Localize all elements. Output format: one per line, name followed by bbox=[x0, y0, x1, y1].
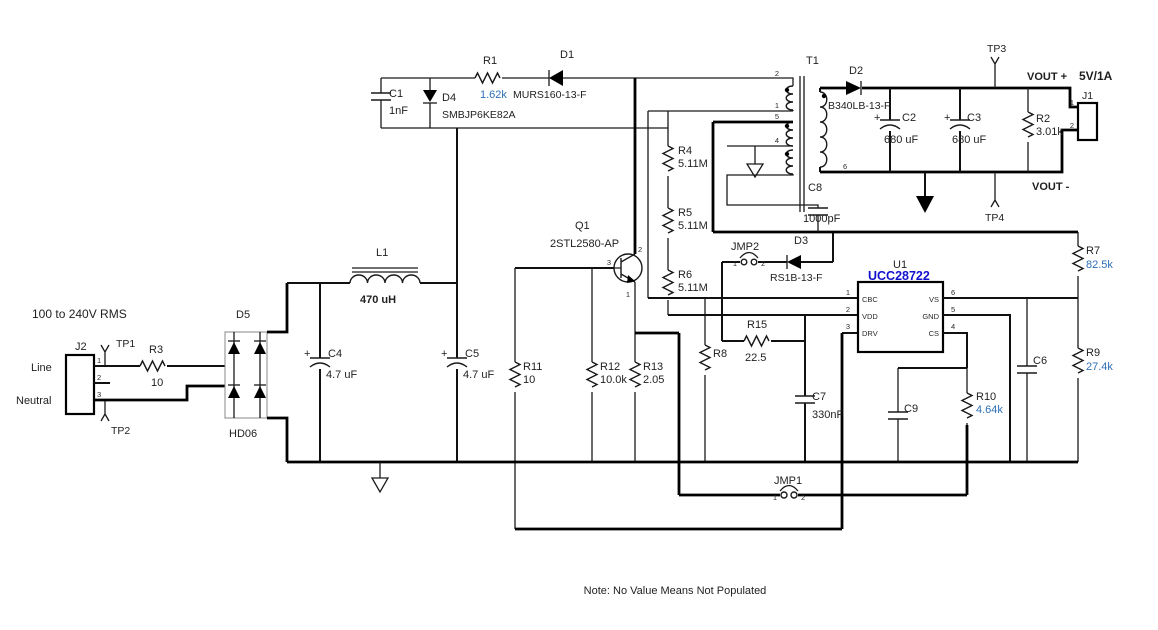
r12-ref: R12 bbox=[600, 361, 620, 373]
q1-pin-b: 3 bbox=[607, 258, 611, 267]
polarity-dot bbox=[785, 124, 789, 128]
r7-ref: R7 bbox=[1086, 245, 1100, 257]
jmp2-arc bbox=[740, 253, 758, 259]
tp2-ref: TP2 bbox=[111, 425, 130, 437]
r2-ref: R2 bbox=[1036, 113, 1050, 125]
c8-ref: C8 bbox=[808, 182, 822, 194]
l1-value: 470 uH bbox=[360, 294, 396, 306]
t1-pin2-number: 2 bbox=[775, 69, 779, 78]
j2-pin2-number: 2 bbox=[97, 373, 101, 382]
t1-core bbox=[800, 76, 804, 212]
resistor-r12: R12 10.0k bbox=[587, 268, 627, 462]
ac-input-section: 100 to 240V RMS J2 1 2 3 Line Neutral TP… bbox=[16, 283, 287, 462]
l1-core bbox=[352, 268, 418, 272]
u1-pin3-name: DRV bbox=[862, 329, 878, 338]
jmp2-pin1: 1 bbox=[733, 259, 737, 268]
schematic-canvas: 100 to 240V RMS J2 1 2 3 Line Neutral TP… bbox=[0, 0, 1158, 630]
j1-ref: J1 bbox=[1082, 90, 1093, 102]
c7-value: 330nF bbox=[812, 409, 843, 421]
d1-ref: D1 bbox=[560, 49, 574, 61]
c6-ref: C6 bbox=[1033, 355, 1047, 367]
q1-ref: Q1 bbox=[575, 220, 590, 232]
c4-ref: C4 bbox=[328, 348, 342, 360]
d5-part: HD06 bbox=[229, 428, 257, 440]
r3-value: 10 bbox=[151, 377, 163, 389]
wire bbox=[679, 425, 967, 495]
tp4-symbol bbox=[991, 172, 999, 207]
j1-body bbox=[1078, 103, 1097, 140]
vout-minus-label: VOUT - bbox=[1032, 181, 1070, 193]
r15-value: 22.5 bbox=[745, 352, 766, 364]
c5-ref: C5 bbox=[465, 348, 479, 360]
tp4-ref: TP4 bbox=[985, 212, 1004, 224]
diode-icon bbox=[254, 386, 266, 398]
r1-ref: R1 bbox=[483, 55, 497, 67]
t1-pin4-wire bbox=[727, 146, 793, 164]
t1-pin4-number: 4 bbox=[775, 136, 779, 145]
polarity-dot bbox=[785, 88, 789, 92]
c2-ref: C2 bbox=[902, 112, 916, 124]
r7-value: 82.5k bbox=[1086, 259, 1113, 271]
jmp2-pad1 bbox=[741, 259, 747, 265]
diode-icon bbox=[549, 70, 563, 86]
power-ground-icon bbox=[916, 196, 934, 213]
tvs-d4: D4 SMBJP6KE82A bbox=[423, 78, 516, 128]
u1-pin1-name: CBC bbox=[862, 295, 878, 304]
d3-part: RS1B-13-F bbox=[770, 272, 823, 284]
u1-pin2-name: VDD bbox=[862, 312, 878, 321]
r2-value: 3.01k bbox=[1036, 126, 1063, 138]
inductor-l1: L1 470 uH bbox=[350, 247, 420, 306]
output-rating-label: 5V/1A bbox=[1079, 69, 1113, 83]
u1-pin3-number: 3 bbox=[846, 322, 850, 331]
resistor-r7: R7 82.5k bbox=[1073, 232, 1113, 298]
d2-part: B340LB-13-F bbox=[828, 100, 890, 112]
u1-pin4-name: CS bbox=[929, 329, 939, 338]
primary-ground bbox=[287, 462, 1078, 492]
j2-ref: J2 bbox=[75, 341, 87, 353]
c1-value: 1nF bbox=[389, 105, 408, 117]
capacitor-c7: C7 330nF bbox=[795, 315, 843, 462]
diode-icon bbox=[787, 255, 801, 269]
neutral-label: Neutral bbox=[16, 395, 51, 407]
u1-pin6-number: 6 bbox=[951, 288, 955, 297]
schematic-page: 100 to 240V RMS J2 1 2 3 Line Neutral TP… bbox=[0, 0, 1158, 630]
plus-sign: + bbox=[304, 348, 310, 360]
jmp2-pin2: 2 bbox=[761, 259, 765, 268]
ic-u1: U1 UCC28722 1 2 3 6 5 4 CBC VDD DRV VS G… bbox=[846, 259, 955, 352]
r9-value: 27.4k bbox=[1086, 361, 1113, 373]
jmp1-pin2: 2 bbox=[801, 493, 805, 502]
u1-pin4-number: 4 bbox=[951, 322, 955, 331]
capacitor-c1: C1 1nF bbox=[371, 78, 408, 128]
r5-ref: R5 bbox=[678, 207, 692, 219]
jmp1-pad2 bbox=[791, 492, 797, 498]
diode-icon bbox=[254, 342, 266, 354]
capacitor-c6: C6 bbox=[1017, 298, 1047, 462]
c3-ref: C3 bbox=[967, 112, 981, 124]
q1-part: 2STL2580-AP bbox=[550, 238, 619, 250]
r8-ref: R8 bbox=[713, 348, 727, 360]
c3-value: 680 uF bbox=[952, 134, 987, 146]
jmp1-pad1 bbox=[781, 492, 787, 498]
resistor-r9: R9 27.4k bbox=[1073, 298, 1113, 462]
resistor-r3: R3 10 bbox=[94, 344, 225, 389]
ground-icon bbox=[372, 478, 388, 492]
c2-value: 680 uF bbox=[884, 134, 919, 146]
t1-ref: T1 bbox=[806, 55, 819, 67]
c1-ref: C1 bbox=[389, 88, 403, 100]
jmp1-ref: JMP1 bbox=[774, 475, 802, 487]
r12-value: 10.0k bbox=[600, 374, 627, 386]
bulk-section: L1 470 uH + C4 4.7 uF + C5 4.7 uF bbox=[287, 128, 494, 462]
j2-body bbox=[66, 355, 94, 414]
diode-icon bbox=[423, 90, 437, 102]
resistor-r8: R8 bbox=[700, 298, 727, 462]
j1-pin2-number: 2 bbox=[1070, 121, 1074, 130]
d1-part: MURS160-13-F bbox=[513, 89, 587, 101]
diode-icon bbox=[228, 386, 240, 398]
tp3-ref: TP3 bbox=[987, 43, 1006, 55]
polarity-dot bbox=[785, 152, 789, 156]
d3-ref: D3 bbox=[794, 235, 808, 247]
tp1-ref: TP1 bbox=[116, 338, 135, 350]
resistor-r11: R11 10 bbox=[510, 268, 542, 529]
t1-secondary-winding bbox=[820, 92, 827, 167]
c5-value: 4.7 uF bbox=[463, 369, 494, 381]
resistor-r15: R15 22.5 bbox=[722, 319, 805, 364]
testpoint-tp3: TP3 bbox=[987, 43, 1006, 88]
diode-icon bbox=[228, 342, 240, 354]
bridge-output-wires bbox=[267, 283, 287, 462]
tp3-symbol bbox=[991, 57, 999, 88]
controller-section: U1 UCC28722 1 2 3 6 5 4 CBC VDD DRV VS G… bbox=[515, 182, 1113, 529]
t1-pin1-wire bbox=[648, 110, 793, 111]
r11-value: 10 bbox=[523, 374, 535, 386]
u1-pin2-number: 2 bbox=[846, 305, 850, 314]
u1-part: UCC28722 bbox=[868, 269, 930, 283]
bridge-rectifier-d5: D5 HD06 bbox=[225, 283, 287, 462]
diode-d3: D3 RS1B-13-F bbox=[770, 232, 833, 284]
capacitor-c4: + C4 4.7 uF bbox=[304, 283, 357, 462]
d4-part: SMBJP6KE82A bbox=[442, 109, 516, 121]
resistor-r13: R13 2.05 bbox=[630, 361, 664, 462]
u1-pin6-name: VS bbox=[929, 295, 939, 304]
vout-plus-label: VOUT + bbox=[1027, 71, 1067, 83]
q1-pin-e: 1 bbox=[626, 290, 630, 299]
j1-pin1-number: 1 bbox=[1070, 98, 1074, 107]
jmp1-pin1: 1 bbox=[773, 493, 777, 502]
testpoint-tp4: TP4 bbox=[985, 172, 1004, 224]
snubber-top-wire bbox=[381, 78, 793, 86]
polarity-dot bbox=[822, 94, 826, 98]
r13-value: 2.05 bbox=[643, 374, 664, 386]
plus-sign: + bbox=[944, 112, 950, 124]
t1-pin5-wire bbox=[713, 122, 793, 232]
diode-icon bbox=[846, 81, 861, 95]
jumper-jmp1: 1 2 JMP1 bbox=[679, 425, 967, 502]
plus-sign: + bbox=[874, 112, 880, 124]
tp2-symbol bbox=[101, 400, 109, 421]
r6-value: 5.11M bbox=[678, 282, 708, 294]
capacitor-c9: C9 bbox=[888, 368, 918, 462]
r9-ref: R9 bbox=[1086, 347, 1100, 359]
r13-ref: R13 bbox=[643, 361, 663, 373]
testpoint-tp1: TP1 bbox=[101, 338, 135, 366]
r10-ref: R10 bbox=[976, 391, 996, 403]
r10-value: 4.64k bbox=[976, 404, 1003, 416]
capacitor-c8: C8 . 1000pF bbox=[801, 182, 841, 232]
cs-wire bbox=[898, 333, 967, 368]
testpoint-tp2: TP2 bbox=[101, 400, 130, 437]
diode-d1: D1 MURS160-13-F bbox=[513, 49, 587, 101]
d4-ref: D4 bbox=[442, 92, 456, 104]
r11-ref: R11 bbox=[523, 361, 542, 373]
q1-pin-c: 2 bbox=[638, 245, 642, 254]
d5-ref: D5 bbox=[236, 309, 250, 321]
power-ground bbox=[916, 172, 934, 213]
r1-value: 1.62k bbox=[480, 89, 507, 101]
l1-coil bbox=[350, 275, 420, 283]
capacitor-c5: + C5 4.7 uF bbox=[441, 283, 494, 462]
tp1-symbol bbox=[101, 345, 109, 366]
d5-columns bbox=[234, 332, 260, 418]
jmp2-ref: JMP2 bbox=[731, 241, 759, 253]
u1-pin5-name: GND bbox=[922, 312, 939, 321]
transformer-t1: T1 2 1 5 4 6 bbox=[648, 55, 847, 232]
j2-pin1-number: 1 bbox=[97, 356, 101, 365]
line-label: Line bbox=[31, 362, 52, 374]
clamp-section: C1 1nF D4 SMBJP6KE82A R1 1.62k D1 MURS16… bbox=[371, 49, 793, 128]
gnd-wire bbox=[943, 315, 1010, 462]
r4-value: 5.11M bbox=[678, 158, 708, 170]
input-rating-label: 100 to 240V RMS bbox=[32, 307, 127, 321]
u1-pin1-number: 1 bbox=[846, 288, 850, 297]
c9-ref: C9 bbox=[904, 403, 918, 415]
sense-branch-wire bbox=[635, 333, 679, 495]
r6-ref: R6 bbox=[678, 269, 692, 281]
t1-pin5-number: 5 bbox=[775, 112, 779, 121]
r4-ref: R4 bbox=[678, 145, 692, 157]
r5-value: 5.11M bbox=[678, 220, 708, 232]
output-section: D2 B340LB-13-F + C2 680 uF + C3 680 uF T… bbox=[820, 43, 1113, 224]
capacitor-c3: + C3 680 uF bbox=[944, 88, 987, 172]
j2-pin3-number: 3 bbox=[97, 390, 101, 399]
c8-value: 1000pF bbox=[803, 213, 841, 225]
resistor-r2: R2 3.01k bbox=[1023, 88, 1063, 172]
transistor-q1: Q1 2STL2580-AP 2 3 1 bbox=[550, 220, 642, 299]
d2-ref: D2 bbox=[849, 65, 863, 77]
r15-ref: R15 bbox=[747, 319, 767, 331]
t1-pin6-number: 6 bbox=[843, 162, 847, 171]
connector-j1: J1 1 2 bbox=[1070, 90, 1097, 140]
c4-value: 4.7 uF bbox=[326, 369, 357, 381]
connector-j2: J2 1 2 3 Line Neutral bbox=[16, 341, 110, 414]
schematic-note: Note: No Value Means Not Populated bbox=[584, 585, 767, 597]
jmp2-pad2 bbox=[751, 259, 757, 265]
startup-chain: R4 5.11M R5 5.11M R6 5.11M bbox=[648, 111, 708, 315]
plus-sign: + bbox=[441, 348, 447, 360]
r3-ref: R3 bbox=[149, 344, 163, 356]
u1-pin5-number: 5 bbox=[951, 305, 955, 314]
l1-ref: L1 bbox=[376, 247, 388, 259]
c7-ref: C7 bbox=[812, 391, 826, 403]
t1-pin1-number: 1 bbox=[775, 101, 779, 110]
